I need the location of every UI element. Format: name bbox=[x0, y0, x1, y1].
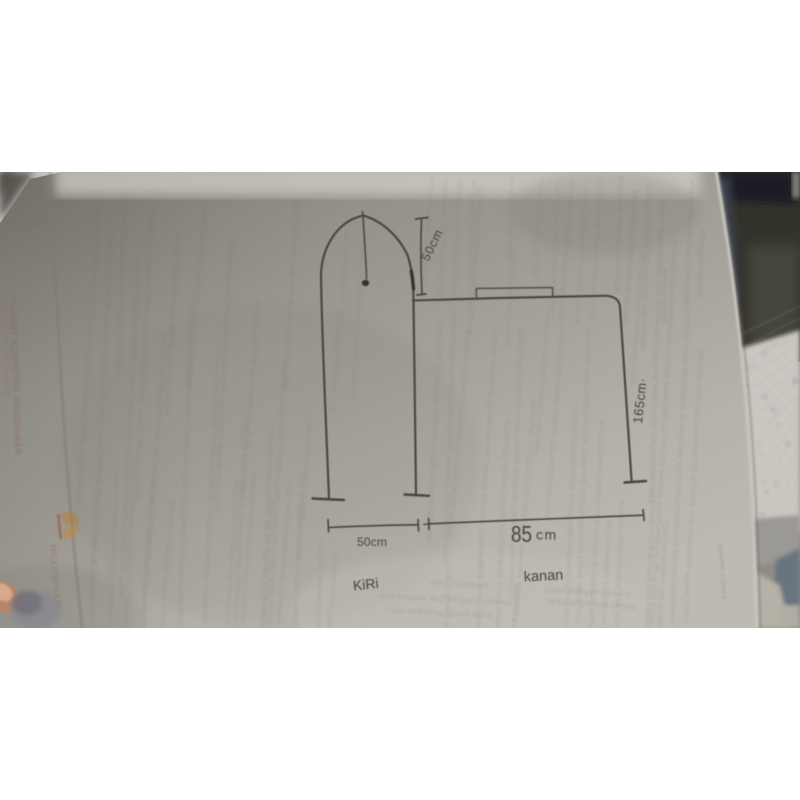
svg-text:85: 85 bbox=[511, 521, 532, 547]
svg-text:50cm: 50cm bbox=[357, 535, 387, 549]
svg-text:KiRi: KiRi bbox=[352, 575, 379, 594]
svg-text:cm: cm bbox=[536, 527, 558, 543]
svg-text:kanan: kanan bbox=[523, 567, 563, 585]
